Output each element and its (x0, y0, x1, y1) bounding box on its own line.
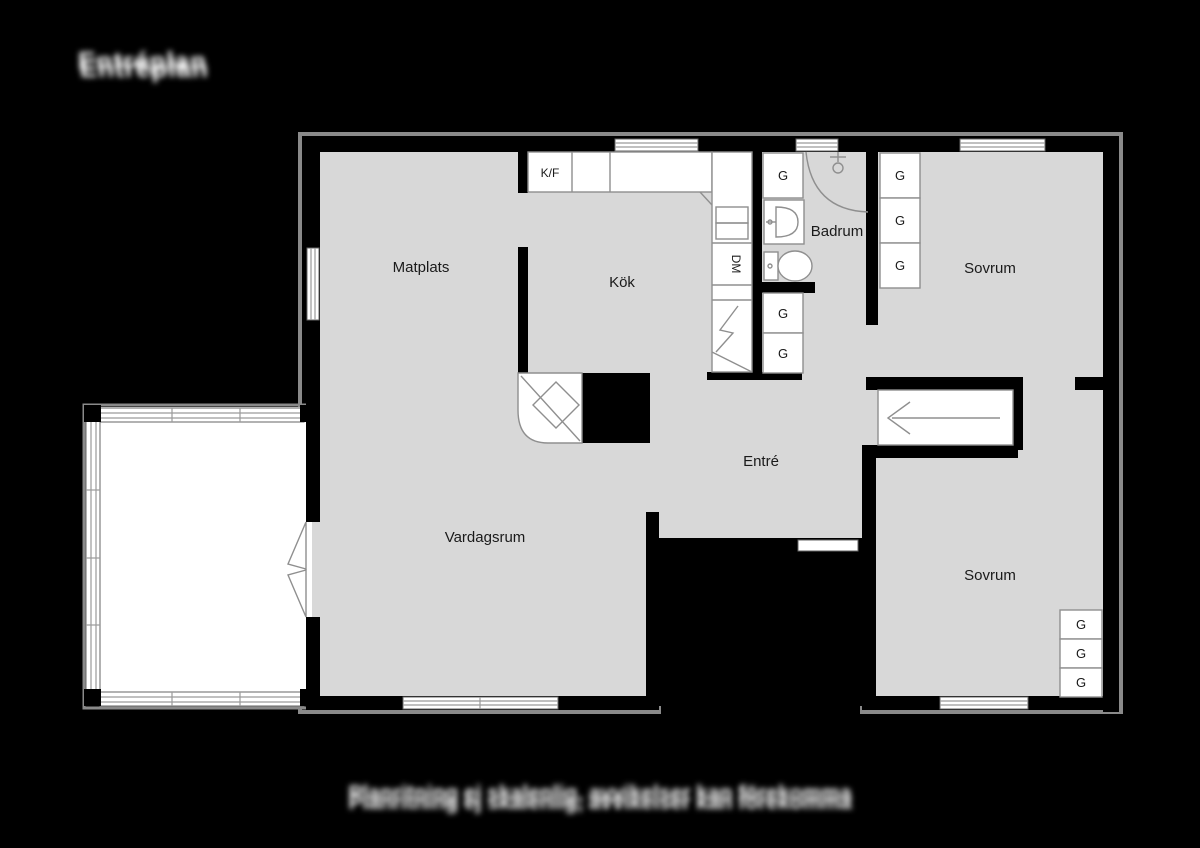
wardrobe: G (1060, 668, 1102, 697)
entry-door (798, 540, 858, 551)
conservatory-window-wall-top (100, 408, 304, 422)
wardrobe: G (1060, 610, 1102, 639)
svg-text:G: G (895, 168, 905, 183)
wardrobe: G (880, 243, 920, 288)
fireplace-chimney (582, 373, 650, 443)
svg-text:G: G (1076, 646, 1086, 661)
room-label-badrum: Badrum (811, 223, 864, 240)
svg-text:G: G (895, 213, 905, 228)
svg-text:G: G (895, 258, 905, 273)
floorplan-drawing: K/F DM (0, 0, 1200, 848)
sink-icon (764, 200, 804, 244)
svg-text:G: G (1076, 675, 1086, 690)
room-label-sovrum-top: Sovrum (964, 260, 1016, 277)
plan-caption: Planritning ej skalenlig, avvikelser kan… (0, 782, 1200, 806)
conservatory-window-wall-left (86, 420, 100, 692)
post-bottom-left (84, 689, 101, 706)
svg-text:G: G (778, 346, 788, 361)
window-bottom-livingroom (403, 697, 558, 709)
conservatory (84, 405, 322, 708)
window-top-1 (615, 139, 698, 151)
wardrobe: G (880, 153, 920, 198)
fridge-freezer-label: K/F (541, 166, 560, 180)
room-label-sovrum-bottom: Sovrum (964, 567, 1016, 584)
room-label-matplats: Matplats (393, 259, 450, 276)
room-label-vardagsrum: Vardagsrum (445, 529, 526, 546)
svg-text:G: G (778, 168, 788, 183)
svg-text:G: G (778, 306, 788, 321)
wardrobe: G (880, 198, 920, 243)
corner-fireplace (518, 373, 582, 443)
toilet-icon (764, 251, 812, 281)
wardrobe: G (763, 333, 803, 373)
window-bottom-bedroom (940, 697, 1028, 709)
conservatory-floor (86, 407, 320, 706)
dishwasher-label: DM (729, 255, 743, 274)
porch-void (655, 548, 866, 706)
svg-text:G: G (1076, 617, 1086, 632)
wardrobe: G (763, 293, 803, 333)
floorplan-page: Entréplan Entréplan (0, 0, 1200, 848)
staircase (878, 390, 1013, 445)
post-top-left (84, 405, 101, 422)
wardrobe: G (763, 153, 803, 198)
window-top-3 (960, 139, 1045, 151)
room-label-kok: Kök (609, 274, 635, 291)
wardrobe: G (1060, 639, 1102, 668)
window-left (307, 248, 319, 320)
window-top-2 (796, 139, 838, 151)
room-label-entre: Entré (743, 453, 779, 470)
conservatory-window-wall-bottom (100, 692, 304, 706)
